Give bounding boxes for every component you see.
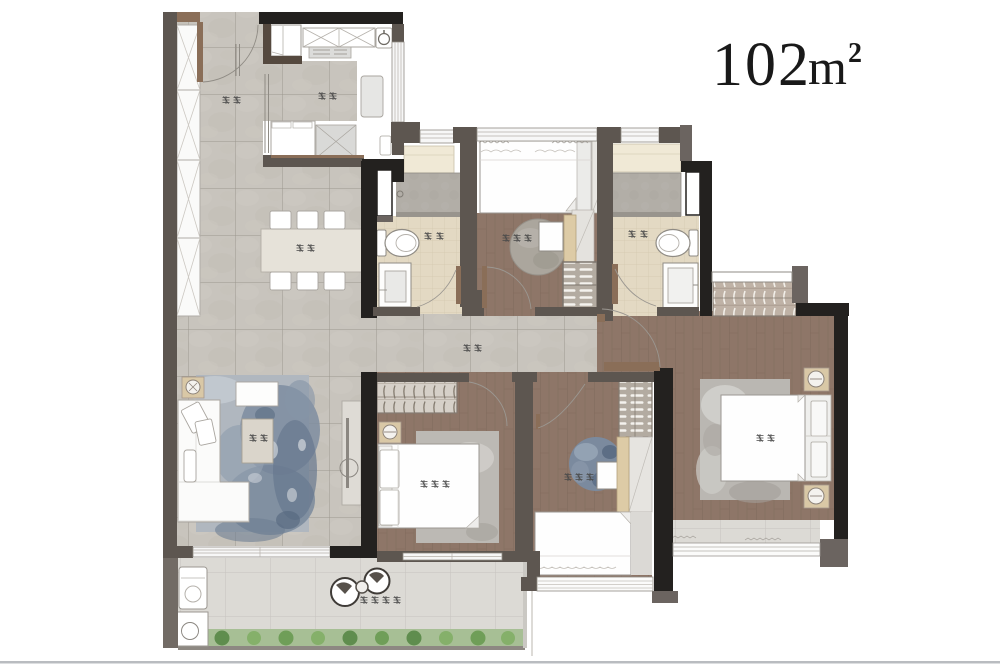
svg-text:102: 102	[712, 31, 811, 99]
svg-text:2: 2	[848, 38, 862, 69]
svg-text:m: m	[808, 39, 847, 95]
